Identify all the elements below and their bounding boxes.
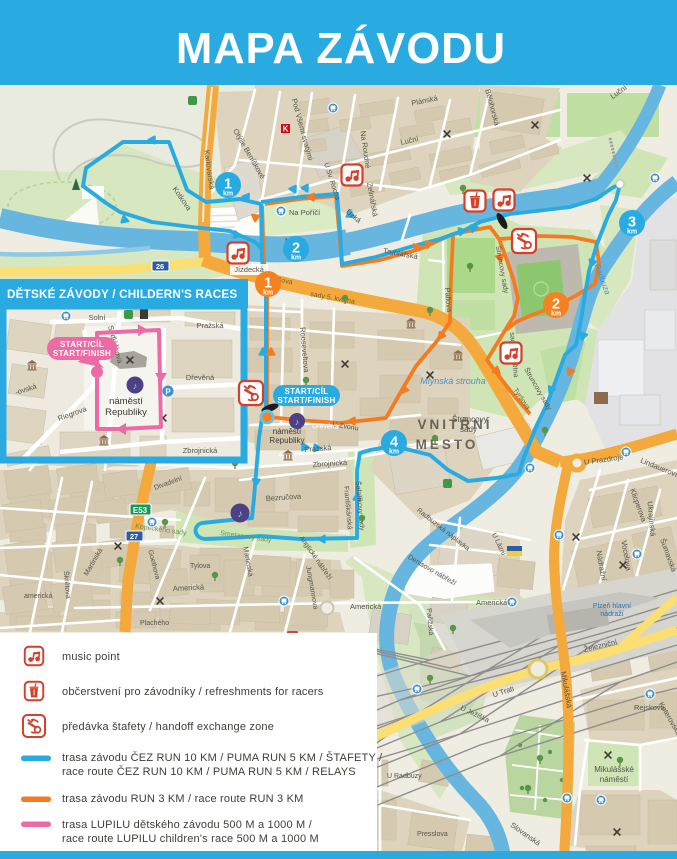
svg-text:♪: ♪	[238, 509, 243, 520]
svg-text:♪: ♪	[295, 417, 300, 427]
svg-text:americká: americká	[24, 593, 53, 600]
svg-text:Na Poříčí: Na Poříčí	[289, 208, 321, 217]
svg-text:Plachého: Plachého	[140, 620, 169, 627]
svg-text:Pražská: Pražská	[196, 321, 224, 330]
svg-text:náměstí: náměstí	[600, 775, 629, 784]
svg-text:Štruncovy: Štruncovy	[452, 415, 488, 424]
svg-text:Mlýnská strouha: Mlýnská strouha	[420, 376, 486, 386]
svg-text:nádraží: nádraží	[600, 611, 623, 618]
svg-text:START/CÍL: START/CÍL	[60, 340, 104, 349]
svg-text:27: 27	[130, 532, 138, 541]
svg-text:DĚTSKÉ ZÁVODY / CHILDERN'S RAC: DĚTSKÉ ZÁVODY / CHILDERN'S RACES	[7, 288, 237, 301]
svg-text:km: km	[627, 229, 637, 236]
svg-text:předávka štafety / handoff exc: předávka štafety / handoff exchange zone	[62, 721, 274, 733]
svg-text:Tylova: Tylova	[190, 563, 210, 570]
svg-text:km: km	[223, 191, 233, 198]
svg-text:START/CÍL: START/CÍL	[285, 387, 329, 396]
svg-text:E53: E53	[133, 506, 148, 515]
svg-text:K: K	[283, 125, 289, 134]
svg-text:Republiky: Republiky	[105, 407, 147, 418]
svg-text:km: km	[263, 290, 273, 297]
svg-text:race route ČEZ RUN 10 KM / PUM: race route ČEZ RUN 10 KM / PUMA RUN 5 KM…	[62, 765, 356, 778]
svg-text:km: km	[551, 311, 561, 318]
svg-text:Mikulášské: Mikulášské	[594, 765, 634, 774]
svg-text:Dřevěná: Dřevěná	[186, 373, 215, 382]
svg-text:P: P	[165, 388, 171, 397]
svg-text:trasa závodu ČEZ RUN 10 KM / P: trasa závodu ČEZ RUN 10 KM / PUMA RUN 5 …	[62, 751, 383, 764]
svg-text:START/FINISH: START/FINISH	[277, 396, 335, 405]
svg-text:trasa závodu RUN 3 KM / race r: trasa závodu RUN 3 KM / race route RUN 3…	[62, 793, 304, 805]
svg-text:music point: music point	[62, 651, 120, 663]
svg-text:Jízdecká: Jízdecká	[234, 265, 264, 274]
svg-text:Dřevěná: Dřevěná	[312, 423, 339, 431]
svg-text:U Radbuzy: U Radbuzy	[387, 773, 422, 780]
svg-text:♪: ♪	[133, 381, 138, 391]
svg-text:race route LUPILU children's r: race route LUPILU children's race 500 M …	[62, 833, 319, 845]
svg-text:Plzeň hlavní: Plzeň hlavní	[593, 603, 631, 610]
svg-text:Zbrojnická: Zbrojnická	[183, 446, 218, 455]
svg-text:START/FINISH: START/FINISH	[53, 349, 111, 358]
svg-text:sady: sady	[460, 425, 477, 434]
svg-text:náměstí: náměstí	[109, 396, 143, 407]
svg-text:MAPA ZÁVODU: MAPA ZÁVODU	[176, 23, 506, 73]
svg-text:26: 26	[156, 262, 164, 271]
svg-text:Republiky: Republiky	[269, 436, 304, 445]
svg-text:Americká: Americká	[173, 582, 206, 593]
svg-text:trasa LUPILU dětského závodu 5: trasa LUPILU dětského závodu 500 M a 100…	[62, 819, 313, 831]
svg-text:MĚSTO: MĚSTO	[416, 437, 479, 452]
svg-text:km: km	[291, 255, 301, 262]
svg-text:občerstvení pro závodníky / re: občerstvení pro závodníky / refreshments…	[62, 686, 324, 698]
svg-text:Americká: Americká	[350, 602, 382, 611]
svg-text:km: km	[389, 449, 399, 456]
svg-text:Presslova: Presslova	[417, 831, 448, 838]
svg-text:Americká: Americká	[476, 598, 508, 607]
svg-text:Solní: Solní	[88, 313, 106, 322]
